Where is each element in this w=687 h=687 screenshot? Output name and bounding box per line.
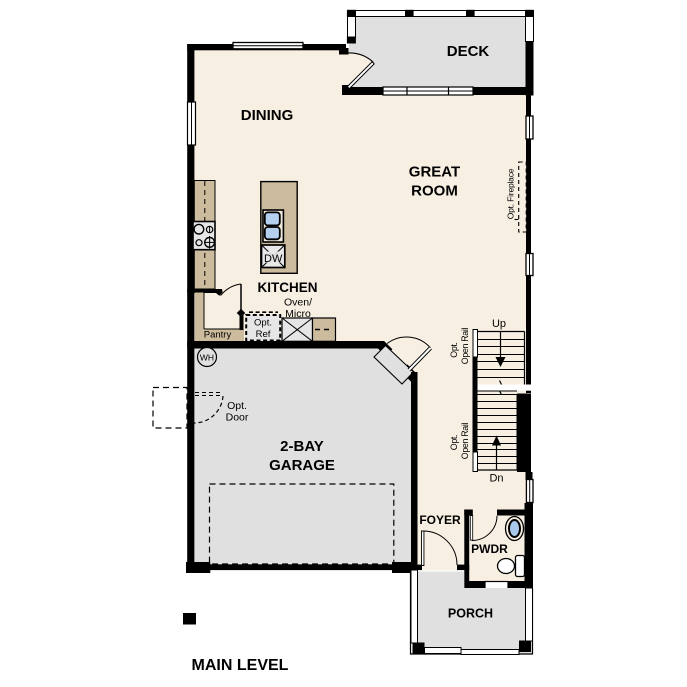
svg-text:Opt.: Opt.	[227, 400, 247, 412]
svg-text:Open Rail: Open Rail	[460, 327, 470, 364]
svg-text:PORCH: PORCH	[448, 607, 493, 621]
svg-text:Micro: Micro	[285, 308, 311, 320]
svg-text:Opt.: Opt.	[254, 318, 272, 329]
svg-text:KITCHEN: KITCHEN	[258, 280, 318, 295]
svg-text:Open Rail: Open Rail	[460, 422, 470, 459]
svg-text:GREAT: GREAT	[409, 164, 460, 181]
svg-text:Opt.: Opt.	[449, 435, 459, 450]
svg-text:2-BAY: 2-BAY	[280, 438, 324, 455]
svg-text:ROOM: ROOM	[411, 183, 458, 200]
svg-text:Pantry: Pantry	[204, 330, 232, 341]
svg-text:Opt. Fireplace: Opt. Fireplace	[506, 168, 516, 219]
svg-text:GARAGE: GARAGE	[269, 457, 335, 474]
svg-text:PWDR: PWDR	[471, 542, 508, 556]
svg-text:WH: WH	[200, 353, 214, 363]
svg-text:Opt.: Opt.	[449, 342, 459, 357]
svg-text:Ref: Ref	[256, 329, 271, 340]
svg-text:Up: Up	[492, 318, 506, 330]
svg-text:Dn: Dn	[489, 473, 503, 485]
svg-text:Door: Door	[226, 412, 249, 424]
svg-text:MAIN LEVEL: MAIN LEVEL	[192, 657, 289, 674]
svg-text:Oven/: Oven/	[284, 297, 312, 309]
svg-text:DW: DW	[264, 253, 283, 265]
svg-text:DINING: DINING	[241, 107, 294, 124]
svg-text:FOYER: FOYER	[419, 513, 461, 527]
svg-text:DECK: DECK	[447, 43, 490, 60]
